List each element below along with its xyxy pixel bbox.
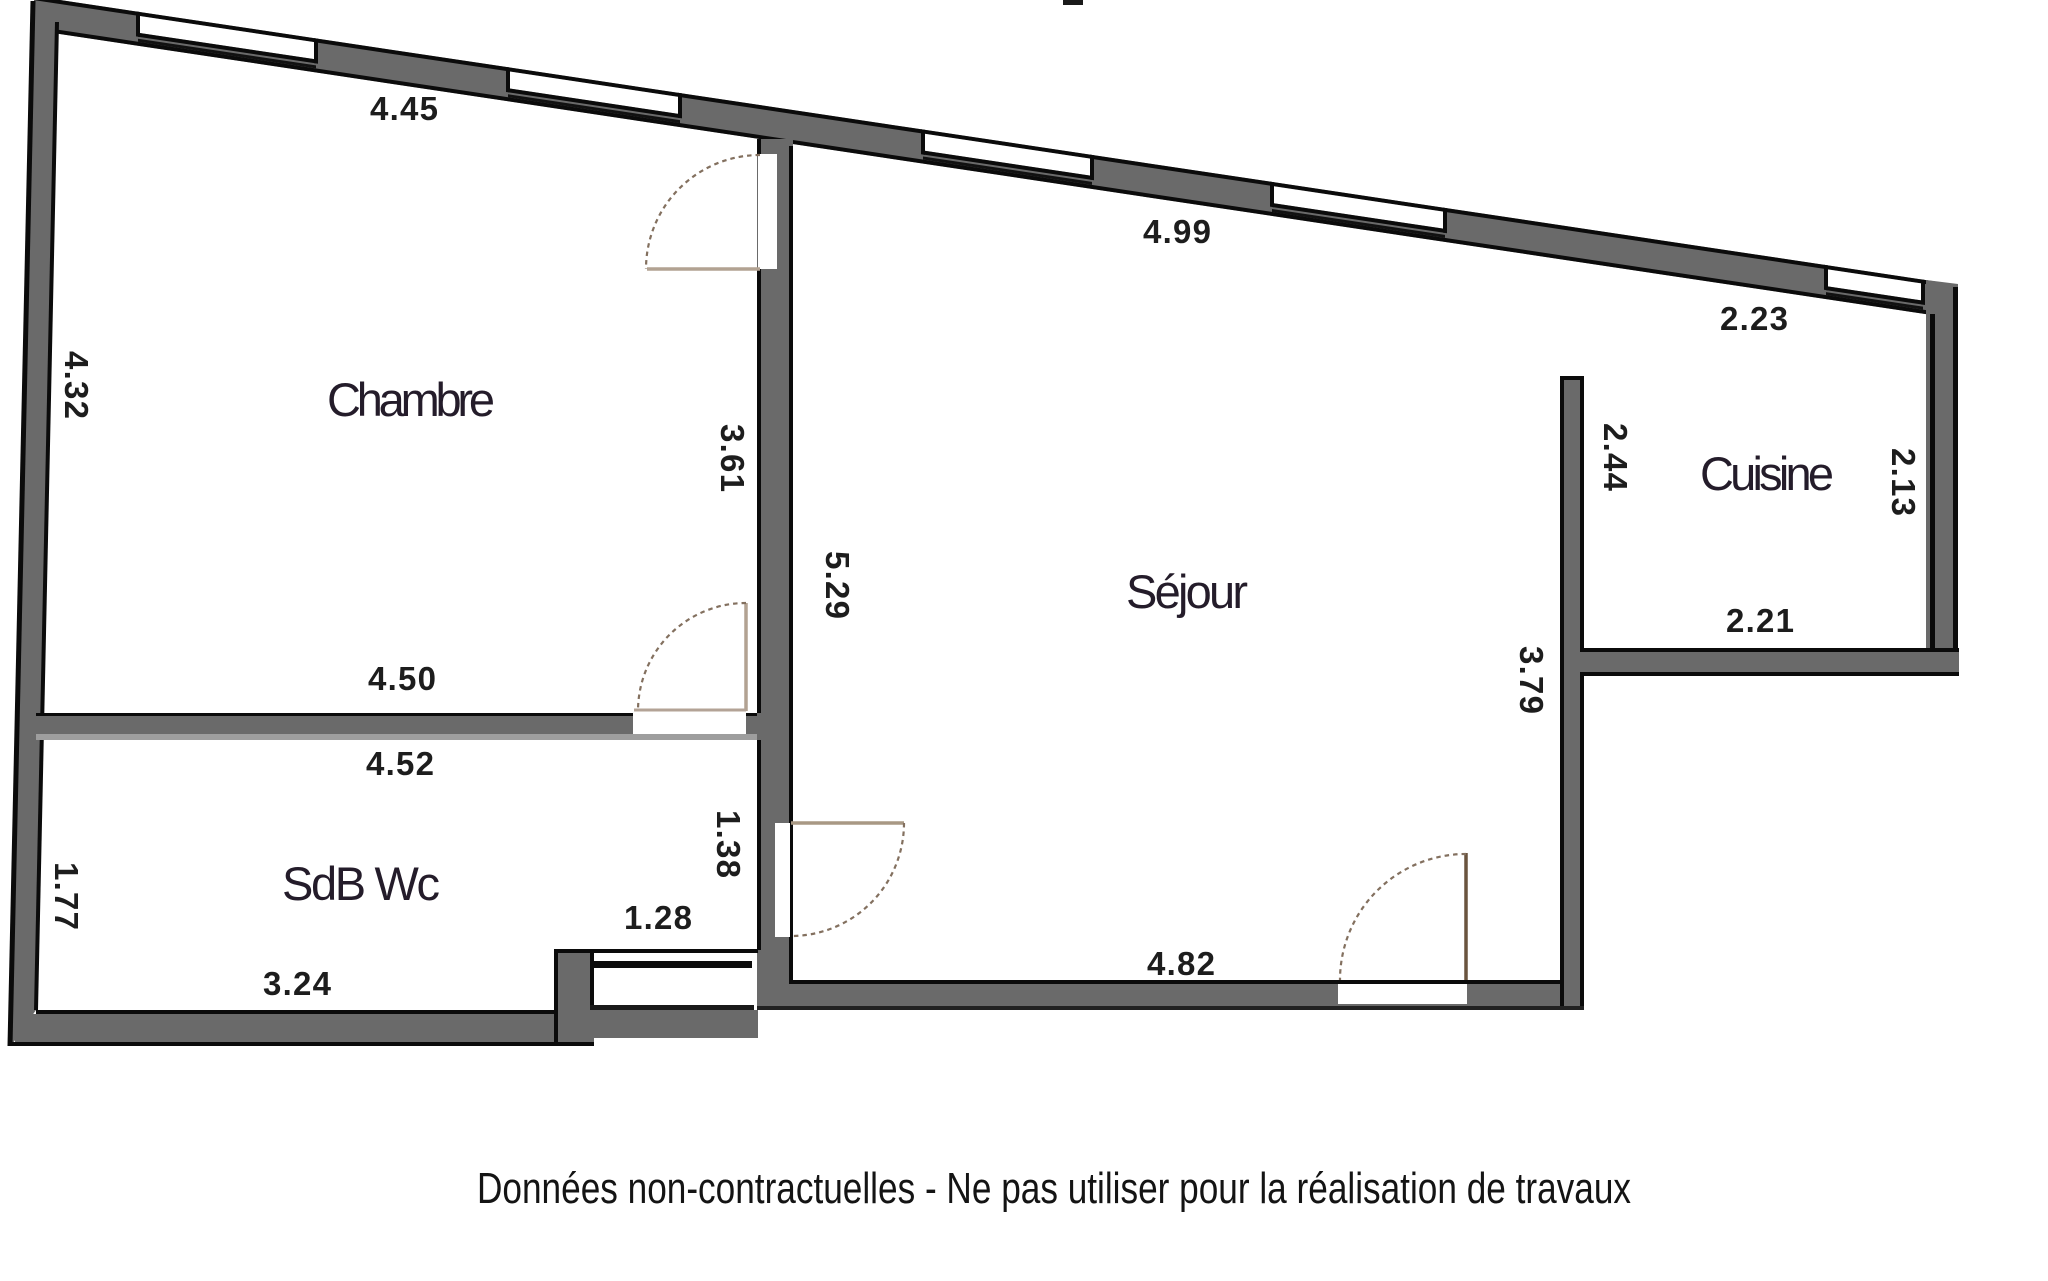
svg-text:3.79: 3.79	[1513, 646, 1550, 714]
svg-text:2.21: 2.21	[1726, 602, 1794, 639]
svg-text:4.99: 4.99	[1143, 213, 1211, 250]
svg-text:1.28: 1.28	[624, 899, 692, 936]
svg-text:4.32: 4.32	[58, 351, 95, 419]
svg-text:Cuisine: Cuisine	[1700, 447, 1834, 500]
svg-text:4.52: 4.52	[366, 745, 434, 782]
svg-text:3.61: 3.61	[714, 424, 751, 492]
svg-text:2.23: 2.23	[1720, 300, 1788, 337]
svg-text:5.29: 5.29	[819, 551, 856, 619]
svg-text:1.77: 1.77	[48, 862, 85, 930]
svg-text:2.44: 2.44	[1597, 423, 1634, 492]
svg-text:Chambre: Chambre	[327, 373, 495, 426]
svg-text:Séjour: Séjour	[1126, 565, 1248, 618]
svg-text:4.45: 4.45	[370, 90, 438, 127]
svg-text:SdB Wc: SdB Wc	[282, 857, 440, 910]
svg-text:4.50: 4.50	[368, 660, 436, 697]
svg-text:3.24: 3.24	[263, 965, 332, 1002]
svg-text:1.38: 1.38	[710, 810, 747, 878]
svg-text:4.82: 4.82	[1147, 945, 1215, 982]
svg-text:2.13: 2.13	[1885, 448, 1922, 516]
svg-text:Données non-contractuelles - N: Données non-contractuelles - Ne pas util…	[477, 1164, 1631, 1213]
